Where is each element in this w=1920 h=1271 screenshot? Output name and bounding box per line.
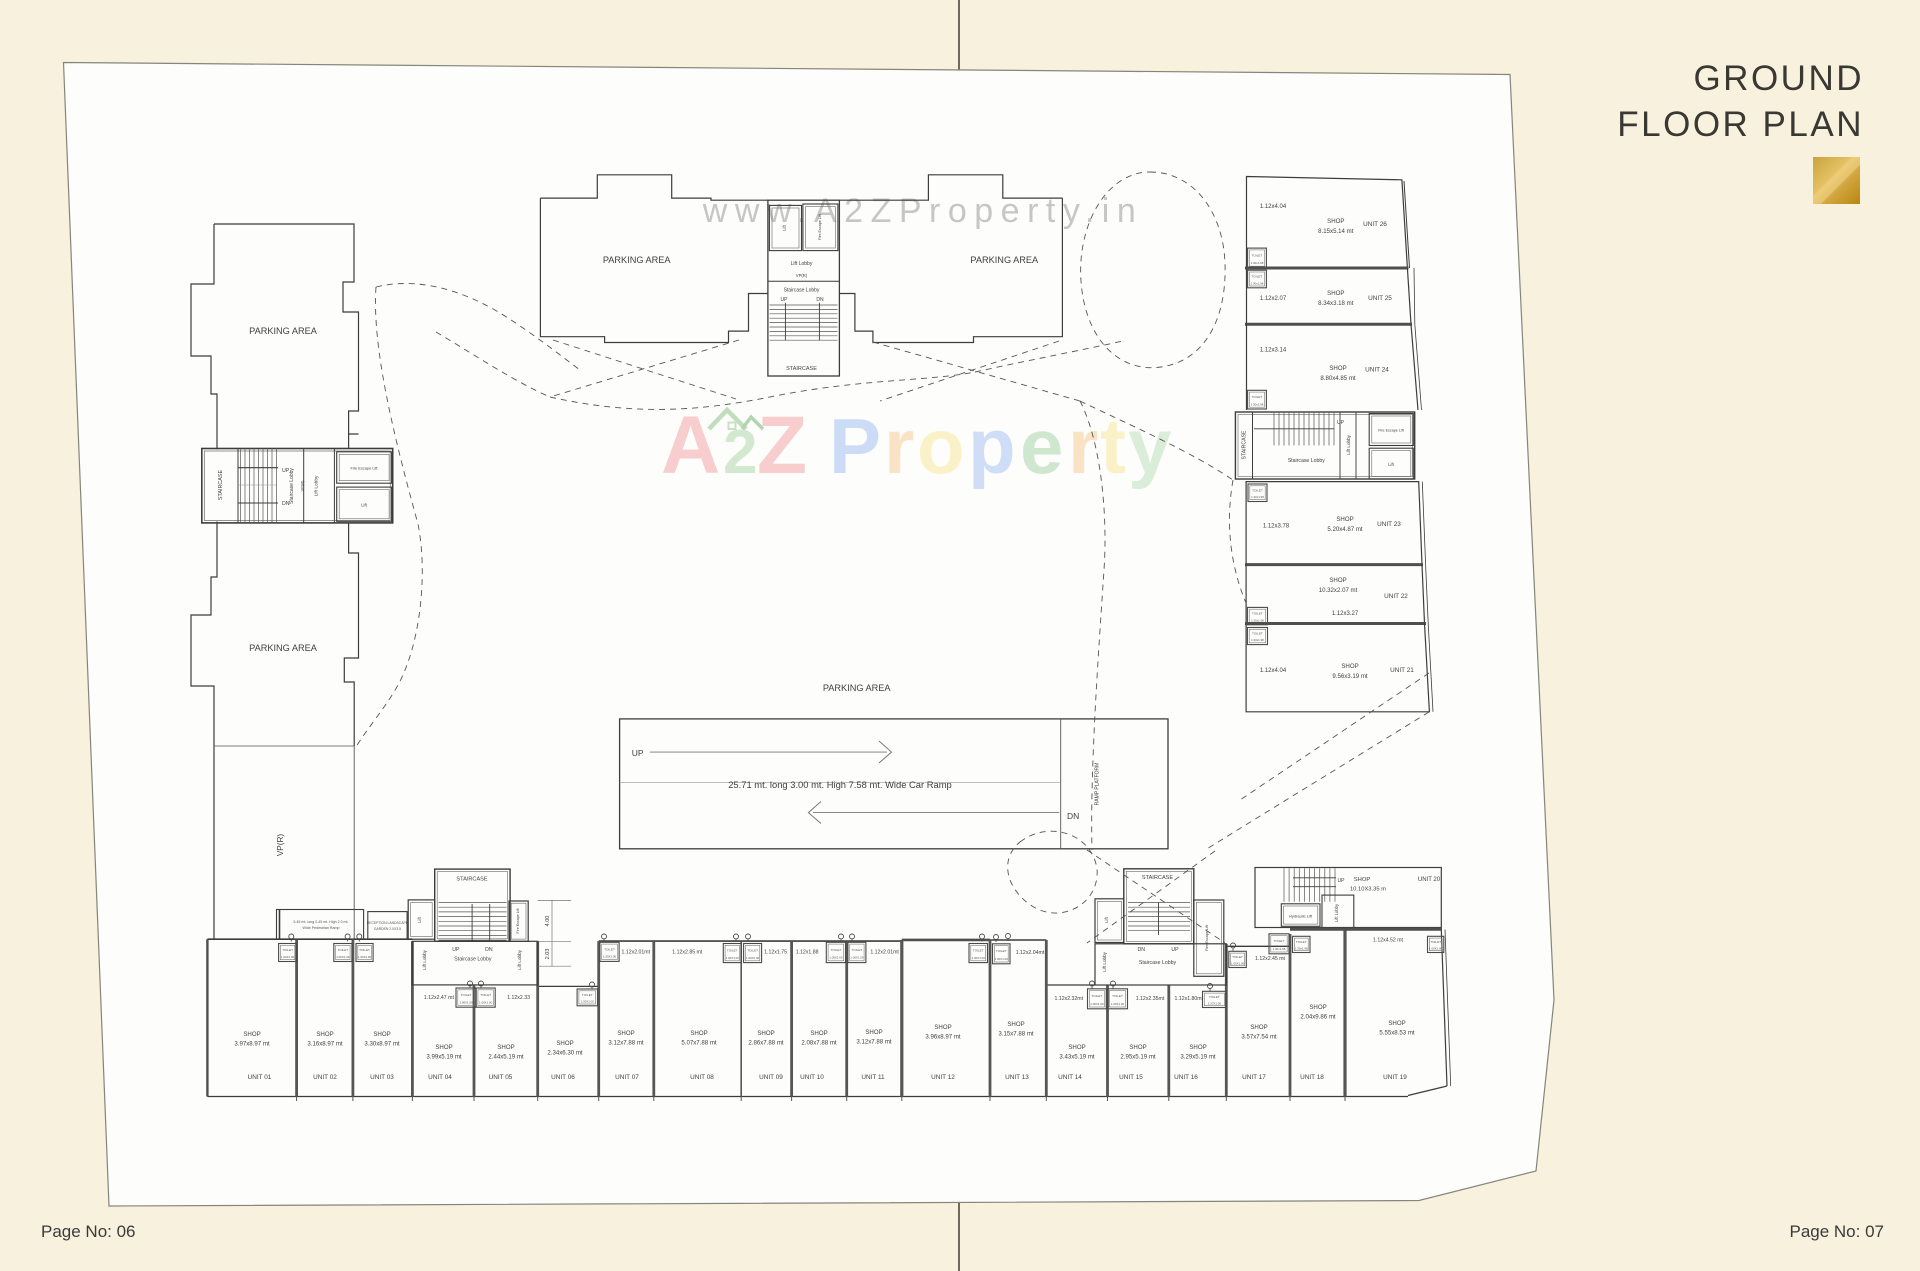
svg-text:SHOP: SHOP (1388, 1020, 1405, 1027)
svg-text:1.00X1.00: 1.00X1.00 (603, 955, 617, 959)
svg-text:SHOP: SHOP (690, 1030, 707, 1037)
svg-text:UNIT 04: UNIT 04 (428, 1074, 452, 1081)
svg-text:UNIT 10: UNIT 10 (800, 1074, 824, 1081)
svg-text:1.00X1.00: 1.00X1.00 (479, 1000, 493, 1004)
svg-text:STAIRCASE: STAIRCASE (456, 877, 488, 883)
svg-text:UNIT 18: UNIT 18 (1300, 1074, 1324, 1081)
svg-text:2.44x5.19 mt: 2.44x5.19 mt (488, 1054, 524, 1061)
svg-text:r: r (1068, 402, 1098, 490)
svg-text:SHOP: SHOP (497, 1044, 514, 1051)
svg-text:Lift Lobby: Lift Lobby (1334, 903, 1339, 922)
svg-text:TOILET: TOILET (1252, 395, 1263, 399)
svg-text:1.30x1.98: 1.30x1.98 (1273, 947, 1286, 951)
svg-text:TOILET: TOILET (727, 949, 738, 953)
svg-text:TOILET: TOILET (1252, 612, 1263, 616)
svg-text:3.43x5.19 mt: 3.43x5.19 mt (1059, 1054, 1095, 1061)
svg-text:UNIT 25: UNIT 25 (1368, 295, 1392, 302)
svg-text:25.71 mt. long 3.00 mt. High 7: 25.71 mt. long 3.00 mt. High 7.58 mt. Wi… (728, 779, 952, 790)
svg-text:Page No: 06: Page No: 06 (41, 1222, 136, 1241)
svg-text:10.10X3.35 m: 10.10X3.35 m (1350, 887, 1386, 893)
svg-text:UNIT 11: UNIT 11 (861, 1074, 885, 1081)
svg-text:UNIT 05: UNIT 05 (489, 1074, 513, 1081)
svg-text:TOILET: TOILET (852, 948, 863, 952)
svg-text:1.00X1.00: 1.00X1.00 (850, 956, 864, 960)
svg-text:A: A (661, 400, 720, 491)
svg-text:UNIT 16: UNIT 16 (1174, 1074, 1198, 1081)
svg-text:SHOP: SHOP (1189, 1044, 1206, 1051)
svg-text:TOILET: TOILET (1274, 939, 1285, 943)
svg-text:DN: DN (816, 297, 824, 303)
svg-text:UNIT 22: UNIT 22 (1384, 593, 1408, 600)
svg-text:3.12x7.88 mt: 3.12x7.88 mt (856, 1039, 892, 1046)
svg-text:SHOP: SHOP (1336, 516, 1353, 523)
svg-text:5.20x4.87 mt: 5.20x4.87 mt (1327, 526, 1363, 533)
svg-text:1.12x2.47 mt: 1.12x2.47 mt (424, 995, 455, 1001)
svg-text:3.96x8.97 mt: 3.96x8.97 mt (925, 1034, 961, 1041)
svg-text:SHOP: SHOP (1250, 1024, 1267, 1031)
svg-text:Fire Escape Lift: Fire Escape Lift (516, 909, 520, 934)
svg-text:2.03: 2.03 (545, 949, 551, 960)
svg-text:p: p (968, 402, 1016, 490)
svg-text:Staircase Lobby: Staircase Lobby (454, 957, 492, 963)
svg-text:1.12x2.01mt: 1.12x2.01mt (622, 950, 651, 956)
svg-text:TOILET: TOILET (480, 993, 491, 997)
svg-text:1.12x2.33: 1.12x2.33 (507, 995, 530, 1001)
svg-text:UNIT 08: UNIT 08 (690, 1074, 714, 1081)
svg-text:TOILET: TOILET (831, 948, 842, 952)
svg-text:3.29x5.19 mt: 3.29x5.19 mt (1180, 1054, 1216, 1061)
svg-text:1.00X1.00: 1.00X1.00 (995, 957, 1009, 961)
svg-text:Lift Lobby: Lift Lobby (517, 949, 522, 970)
svg-text:Lift: Lift (1388, 462, 1394, 467)
svg-text:1.00X1.00: 1.00X1.00 (336, 955, 350, 959)
svg-text:1.12x3.27: 1.12x3.27 (1332, 611, 1359, 617)
svg-text:STAIRCASE: STAIRCASE (218, 470, 224, 501)
svg-text:DN: DN (1067, 811, 1079, 821)
svg-text:TOILET: TOILET (996, 949, 1007, 953)
svg-text:1.00X1.00: 1.00X1.00 (829, 956, 843, 960)
svg-text:1.00X1.00: 1.00X1.00 (1111, 1002, 1125, 1006)
svg-text:1.00X1.00: 1.00X1.00 (281, 955, 295, 959)
svg-text:UP: UP (1337, 420, 1345, 426)
svg-text:UNIT 02: UNIT 02 (313, 1074, 337, 1081)
svg-text:t: t (1100, 402, 1126, 490)
svg-text:Page No: 07: Page No: 07 (1789, 1222, 1884, 1241)
svg-text:TOILET: TOILET (747, 949, 758, 953)
svg-text:1.00X1.00: 1.00X1.00 (726, 956, 740, 960)
svg-text:UNIT 15: UNIT 15 (1119, 1074, 1143, 1081)
svg-text:TOILET: TOILET (1430, 940, 1441, 944)
svg-text:Lift Lobby: Lift Lobby (1346, 434, 1351, 455)
svg-text:1.30x1.98: 1.30x1.98 (1251, 402, 1264, 406)
svg-text:2.04x9.86 mt: 2.04x9.86 mt (1300, 1014, 1336, 1021)
svg-text:SHOP: SHOP (373, 1031, 390, 1038)
svg-text:SHOP: SHOP (1329, 365, 1346, 372)
svg-text:1.12x4.52 mt: 1.12x4.52 mt (1373, 938, 1404, 944)
svg-text:SHOP: SHOP (1329, 577, 1346, 584)
svg-text:Staircase Lobby: Staircase Lobby (1288, 458, 1326, 464)
svg-text:Fire Escape Lift: Fire Escape Lift (350, 466, 378, 471)
svg-text:STAIRCASE: STAIRCASE (786, 366, 817, 372)
svg-text:1.12x2.45 mt: 1.12x2.45 mt (1255, 956, 1286, 962)
svg-text:STAIRCASE: STAIRCASE (1242, 430, 1248, 460)
svg-text:2.08x7.88 mt: 2.08x7.88 mt (801, 1040, 837, 1047)
svg-text:2.34x6.30 mt: 2.34x6.30 mt (547, 1050, 583, 1057)
svg-text:e: e (1020, 402, 1063, 490)
svg-text:DN: DN (1138, 947, 1146, 953)
svg-text:8.80x4.85 mt: 8.80x4.85 mt (1320, 375, 1356, 382)
svg-text:TOILET: TOILET (282, 948, 293, 952)
svg-text:SHOP: SHOP (810, 1030, 827, 1037)
svg-text:1.00X1.00: 1.00X1.00 (1429, 946, 1443, 950)
svg-text:RECEPTION LANDSCAPE: RECEPTION LANDSCAPE (367, 921, 409, 925)
svg-text:VP(R): VP(R) (300, 480, 305, 492)
svg-text:UNIT 01: UNIT 01 (248, 1074, 272, 1081)
svg-text:10.32x2.07 mt: 10.32x2.07 mt (1319, 587, 1358, 594)
svg-text:TOILET: TOILET (604, 947, 615, 951)
svg-text:SHOP: SHOP (617, 1030, 634, 1037)
svg-text:SHOP: SHOP (1129, 1044, 1146, 1051)
svg-text:SHOP: SHOP (1341, 663, 1358, 670)
svg-text:TOILET: TOILET (359, 948, 370, 952)
svg-text:TOILET: TOILET (1252, 632, 1263, 636)
svg-text:1.30x1.98: 1.30x1.98 (1251, 281, 1264, 285)
svg-text:UNIT 21: UNIT 21 (1390, 667, 1414, 674)
svg-text:o: o (917, 402, 965, 490)
svg-text:UP: UP (1338, 878, 1346, 884)
svg-text:1.00X1.00: 1.00X1.00 (459, 1000, 473, 1004)
svg-text:TOILET: TOILET (1252, 275, 1263, 279)
svg-text:TOILET: TOILET (973, 949, 984, 953)
svg-text:1.37X1.00: 1.37X1.00 (1208, 1001, 1222, 1005)
svg-text:SHOP: SHOP (865, 1029, 882, 1036)
svg-text:1.30x1.98: 1.30x1.98 (1251, 618, 1264, 622)
svg-text:3.57x7.54 mt: 3.57x7.54 mt (1241, 1034, 1277, 1041)
svg-text:Lift: Lift (417, 916, 422, 922)
svg-text:SHOP: SHOP (1327, 290, 1344, 297)
svg-text:1.00X1.00: 1.00X1.00 (1090, 1002, 1104, 1006)
svg-text:PARKING AREA: PARKING AREA (603, 255, 672, 265)
svg-text:TOILET: TOILET (1252, 253, 1263, 257)
svg-text:3.97x8.97 mt: 3.97x8.97 mt (234, 1041, 270, 1048)
svg-text:8.34x3.18 mt: 8.34x3.18 mt (1318, 300, 1354, 307)
svg-text:Lift: Lift (782, 224, 787, 230)
svg-text:Fire Escape Lift: Fire Escape Lift (818, 214, 822, 240)
svg-text:VP(R): VP(R) (276, 834, 285, 857)
svg-text:5.45 mt. long 0.45 mt. High 2.: 5.45 mt. long 0.45 mt. High 2.0 mt. (293, 920, 348, 924)
svg-text:UNIT 03: UNIT 03 (370, 1074, 394, 1081)
svg-text:UNIT 13: UNIT 13 (1005, 1074, 1029, 1081)
svg-text:UNIT 07: UNIT 07 (615, 1074, 639, 1081)
svg-text:3.30x8.97 mt: 3.30x8.97 mt (364, 1041, 400, 1048)
svg-text:1.12x2.01mt: 1.12x2.01mt (870, 950, 899, 956)
svg-text:SHOP: SHOP (1327, 218, 1344, 225)
svg-text:Hydraulic Lift: Hydraulic Lift (1289, 914, 1313, 919)
svg-text:UNIT 19: UNIT 19 (1383, 1074, 1407, 1081)
svg-text:SHOP: SHOP (1007, 1021, 1024, 1028)
svg-text:1.00X1.00: 1.00X1.00 (358, 955, 372, 959)
svg-text:Lift: Lift (1104, 916, 1109, 922)
svg-text:1.12x2.07: 1.12x2.07 (1260, 296, 1287, 302)
svg-text:UNIT 09: UNIT 09 (759, 1074, 783, 1081)
svg-text:TOILET: TOILET (461, 993, 472, 997)
svg-text:VP(R): VP(R) (796, 273, 808, 278)
svg-text:1.30x1.98: 1.30x1.98 (1295, 946, 1308, 950)
svg-text:SHOP: SHOP (556, 1040, 573, 1047)
svg-text:9.56x3.19 mt: 9.56x3.19 mt (1332, 673, 1368, 680)
svg-text:TOILET: TOILET (582, 993, 593, 997)
svg-text:DN: DN (485, 947, 493, 953)
svg-text:1.12x4.04: 1.12x4.04 (1260, 204, 1287, 210)
svg-text:UNIT 23: UNIT 23 (1377, 521, 1401, 528)
svg-text:Lift Lobby: Lift Lobby (1102, 951, 1107, 972)
svg-text:GROUND: GROUND (1693, 59, 1864, 98)
svg-text:1.12x2.04mt: 1.12x2.04mt (1016, 950, 1045, 956)
svg-text:PARKING AREA: PARKING AREA (249, 643, 318, 653)
svg-text:TOILET: TOILET (1092, 994, 1103, 998)
svg-text:3.12x7.88 mt: 3.12x7.88 mt (608, 1040, 644, 1047)
svg-text:Staircase Lobby: Staircase Lobby (784, 288, 820, 294)
svg-text:1.12x3.14: 1.12x3.14 (1260, 348, 1287, 354)
svg-text:P: P (829, 402, 881, 490)
svg-text:3.15x7.88 mt: 3.15x7.88 mt (998, 1031, 1034, 1038)
svg-text:SHOP: SHOP (1068, 1044, 1085, 1051)
svg-text:1.30x1.98: 1.30x1.98 (1251, 495, 1264, 499)
svg-text:Z: Z (757, 400, 807, 491)
svg-text:Lift Lobby: Lift Lobby (314, 475, 320, 496)
svg-text:3.16x8.97 mt: 3.16x8.97 mt (307, 1041, 343, 1048)
svg-text:5.55x8.53 mt: 5.55x8.53 mt (1379, 1030, 1415, 1037)
svg-text:TOILET: TOILET (1232, 955, 1243, 959)
svg-text:UNIT 06: UNIT 06 (551, 1074, 575, 1081)
svg-text:r: r (884, 402, 914, 490)
svg-text:Fire Escape Lift: Fire Escape Lift (1378, 429, 1404, 433)
svg-text:2.95x5.19 mt: 2.95x5.19 mt (1120, 1054, 1156, 1061)
svg-text:1.12x4.04: 1.12x4.04 (1260, 668, 1287, 674)
svg-text:Staircase Lobby: Staircase Lobby (289, 468, 295, 504)
svg-text:1.12x2.85 mt: 1.12x2.85 mt (672, 950, 703, 956)
svg-text:1.00X1.00: 1.00X1.00 (972, 956, 986, 960)
svg-text:TOILET: TOILET (1252, 488, 1263, 492)
svg-text:SHOP: SHOP (435, 1044, 452, 1051)
svg-text:GARDEN 2.0X3.5: GARDEN 2.0X3.5 (374, 927, 401, 931)
svg-text:SHOP: SHOP (316, 1031, 333, 1038)
svg-text:UNIT 17: UNIT 17 (1242, 1074, 1266, 1081)
svg-text:1.30x1.98: 1.30x1.98 (1251, 261, 1264, 265)
svg-text:PARKING AREA: PARKING AREA (823, 683, 892, 693)
svg-text:1.00X1.00: 1.00X1.00 (581, 999, 595, 1003)
svg-text:UNIT 12: UNIT 12 (931, 1074, 955, 1081)
svg-text:1.12x3.78: 1.12x3.78 (1263, 524, 1290, 530)
svg-text:1.12x1.75: 1.12x1.75 (764, 950, 787, 956)
svg-text:Fire Escape Lift: Fire Escape Lift (1205, 925, 1209, 951)
svg-text:Lift Lobby: Lift Lobby (791, 261, 813, 267)
svg-text:8.15x5.14 mt: 8.15x5.14 mt (1318, 228, 1354, 235)
svg-text:Lift: Lift (361, 503, 367, 508)
svg-text:TOILET: TOILET (1112, 994, 1123, 998)
svg-text:3.99x5.19 mt: 3.99x5.19 mt (426, 1054, 462, 1061)
svg-text:Wide Pedestrian Ramp: Wide Pedestrian Ramp (303, 926, 340, 930)
svg-text:5.07x7.88 mt: 5.07x7.88 mt (681, 1040, 717, 1047)
svg-text:Lift Lobby: Lift Lobby (422, 949, 427, 970)
svg-text:SHOP: SHOP (1309, 1004, 1326, 1011)
svg-text:SHOP: SHOP (243, 1031, 260, 1038)
svg-text:1.30x1.98: 1.30x1.98 (1251, 638, 1264, 642)
svg-text:TOILET: TOILET (337, 948, 348, 952)
svg-text:1.12x2.32mt: 1.12x2.32mt (1055, 996, 1084, 1002)
svg-text:UNIT 20: UNIT 20 (1418, 877, 1441, 883)
svg-text:2.86x7.88 mt: 2.86x7.88 mt (748, 1040, 784, 1047)
svg-text:TOILET: TOILET (1209, 995, 1220, 999)
svg-text:SHOP: SHOP (934, 1024, 951, 1031)
svg-text:1.12x1.88: 1.12x1.88 (796, 950, 819, 956)
svg-text:4.00: 4.00 (545, 916, 551, 927)
svg-text:1.00X1.00: 1.00X1.00 (746, 956, 760, 960)
svg-text:RAMP PLATFORM: RAMP PLATFORM (1095, 763, 1101, 806)
svg-text:1.00X1.00: 1.00X1.00 (1231, 961, 1245, 965)
svg-text:UP: UP (632, 748, 644, 758)
svg-text:FLOOR PLAN: FLOOR PLAN (1617, 105, 1864, 144)
svg-text:PARKING AREA: PARKING AREA (970, 255, 1039, 265)
svg-text:1.12x2.35mt: 1.12x2.35mt (1136, 996, 1165, 1002)
svg-text:PARKING AREA: PARKING AREA (249, 326, 318, 336)
svg-text:UNIT 26: UNIT 26 (1363, 221, 1387, 228)
svg-text:UP: UP (1171, 947, 1179, 953)
svg-text:UNIT 24: UNIT 24 (1365, 367, 1389, 374)
svg-text:UP: UP (452, 947, 460, 953)
svg-text:SHOP: SHOP (1354, 877, 1371, 883)
svg-text:STAIRCASE: STAIRCASE (1142, 875, 1174, 881)
svg-text:y: y (1128, 402, 1171, 490)
svg-text:UNIT 14: UNIT 14 (1058, 1074, 1082, 1081)
svg-text:SHOP: SHOP (757, 1030, 774, 1037)
svg-text:TOILET: TOILET (1296, 940, 1307, 944)
svg-text:Staircase Lobby: Staircase Lobby (1139, 960, 1177, 966)
svg-text:1.12x1.80mt: 1.12x1.80mt (1175, 996, 1204, 1002)
svg-text:UP: UP (781, 297, 789, 303)
